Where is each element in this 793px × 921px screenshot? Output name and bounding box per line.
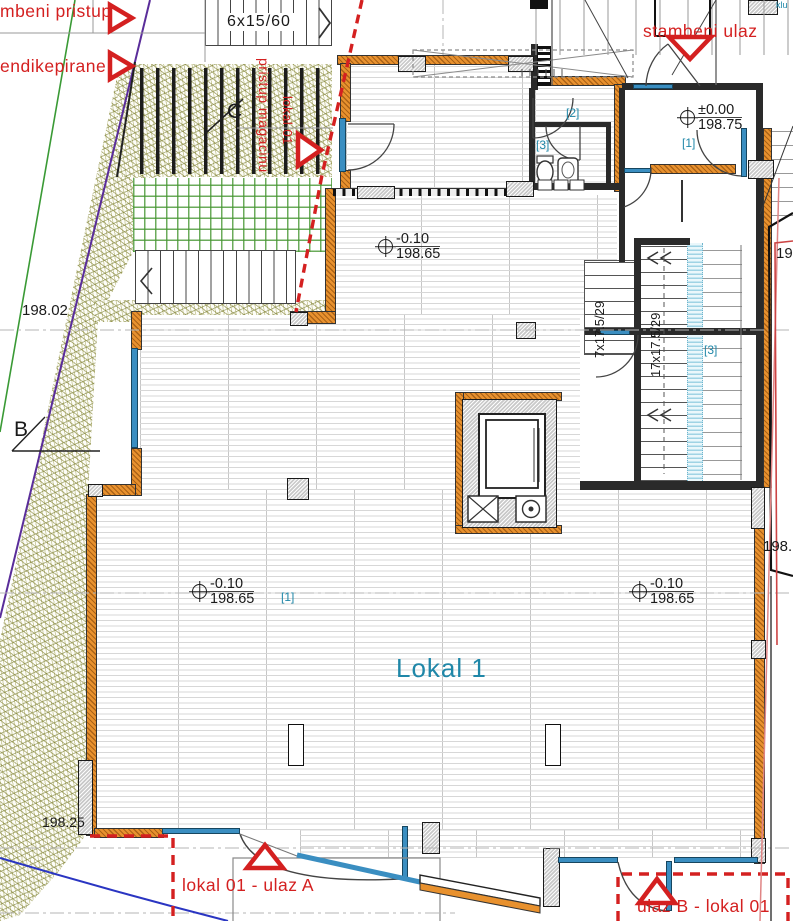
room-tag-3: [3] bbox=[536, 138, 549, 152]
edge-label-198: 198. bbox=[763, 538, 792, 555]
elevation-symbol bbox=[192, 584, 207, 599]
label-stambeni-ulaz: stambeni ulaz bbox=[643, 21, 757, 42]
label-stair-dim-top: 6x15/60 bbox=[224, 13, 294, 31]
floor-plan-canvas: mbeni pristup endikepirane 6x15/60 stamb… bbox=[0, 0, 793, 921]
elevation-symbol bbox=[632, 584, 647, 599]
label-ulaz-b: ulaz B - lokal 01 bbox=[637, 896, 770, 917]
label-pristup-magacinu: pristup magacinu bbox=[256, 58, 272, 258]
spot-level-19802: 198.02 bbox=[22, 302, 68, 319]
label-disabled-access: endikepirane bbox=[0, 56, 106, 77]
label-lokal01-vertical: lokal 01 bbox=[280, 96, 295, 176]
stair-dim-side: 7x17.5/29 bbox=[592, 263, 607, 358]
room-tag-1: [1] bbox=[682, 136, 695, 150]
spot-level-19825: 198.25 bbox=[42, 814, 85, 830]
room-tag-3b: [3] bbox=[704, 343, 717, 357]
room-title-lokal1: Lokal 1 bbox=[396, 653, 487, 684]
label-ulaz-a: lokal 01 - ulaz A bbox=[182, 875, 314, 896]
elevation-symbol bbox=[378, 239, 393, 254]
stair-dim-main: 17x17.5/29 bbox=[648, 272, 663, 377]
section-marker-b: B bbox=[14, 418, 28, 442]
elevation-symbol bbox=[680, 110, 695, 125]
label-klu-cut: klu bbox=[776, 0, 788, 10]
section-marker-c: C bbox=[227, 100, 242, 124]
elevation-marker-lokal-east: -0.10198.65 bbox=[632, 577, 694, 606]
label-residential-access: mbeni pristup bbox=[0, 1, 112, 22]
elevation-marker-storage: -0.10198.65 bbox=[378, 232, 440, 261]
linework-overlay bbox=[0, 0, 793, 921]
elevation-marker-lokal-west: -0.10198.65 bbox=[192, 577, 254, 606]
room-tag-1b: [1] bbox=[281, 590, 294, 604]
edge-label-19: 19 bbox=[776, 245, 793, 262]
room-tag-2: [2] bbox=[566, 106, 579, 120]
elevation-marker-hall: ±0.00198.75 bbox=[680, 103, 742, 132]
